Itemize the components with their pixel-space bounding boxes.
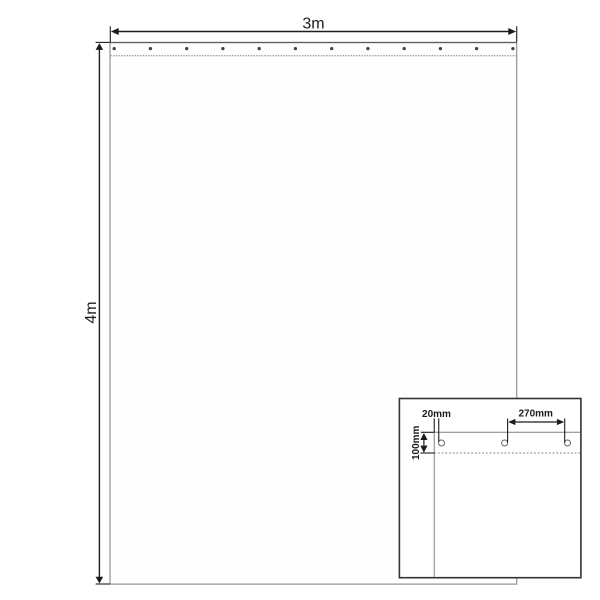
svg-text:3m: 3m [302, 15, 324, 32]
svg-text:270mm: 270mm [518, 409, 553, 420]
svg-text:4m: 4m [83, 301, 100, 323]
svg-text:20mm: 20mm [422, 409, 451, 420]
svg-text:100mm: 100mm [411, 425, 422, 460]
